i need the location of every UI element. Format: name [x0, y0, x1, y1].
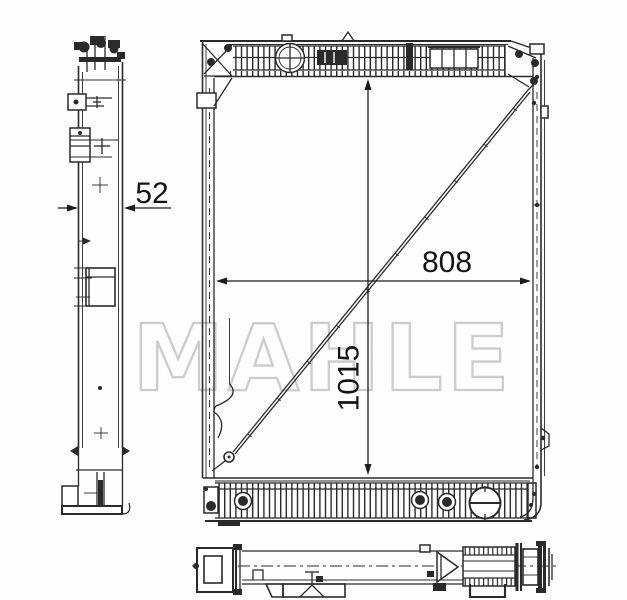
front-view-top-tank [200, 32, 544, 87]
dimension-core-width-label: 808 [422, 246, 472, 279]
diagonal-brace [212, 83, 535, 471]
drawing-svg: MAHLE [0, 0, 627, 600]
filler-cap [275, 43, 305, 73]
radiator-technical-drawing: MAHLE [0, 0, 627, 600]
front-view-right-column [532, 54, 549, 478]
front-view [197, 32, 549, 526]
top-right-corner-bracket [505, 41, 544, 87]
dimension-depth: 52 [58, 177, 171, 212]
side-view [62, 36, 130, 514]
bottom-view-ribbed-connector [463, 547, 515, 586]
watermark-text: MAHLE [132, 305, 513, 412]
top-left-corner-brace [202, 43, 232, 76]
bottom-view [192, 541, 557, 597]
side-view-pipe-fitting-upper [68, 94, 112, 110]
side-view-foot [62, 448, 130, 514]
dimension-depth-label: 52 [135, 177, 168, 210]
watermark: MAHLE [132, 305, 513, 412]
dimension-core-height-label: 1015 [333, 345, 366, 412]
bottom-view-right-flange [517, 541, 552, 593]
side-view-mounting-plate [74, 268, 115, 306]
side-view-top-fittings [74, 36, 125, 72]
bottom-view-funnel-bracket [266, 572, 345, 597]
side-view-pipe-fitting-lower [70, 128, 118, 162]
front-view-bottom-tank [203, 478, 541, 526]
bottom-view-cone-fitting [433, 552, 458, 591]
bottom-view-left-cap [193, 544, 242, 595]
side-view-body [74, 62, 126, 448]
drain-plug [469, 486, 501, 520]
front-view-left-column [197, 41, 233, 478]
dimension-core-height: 1015 [333, 79, 372, 475]
